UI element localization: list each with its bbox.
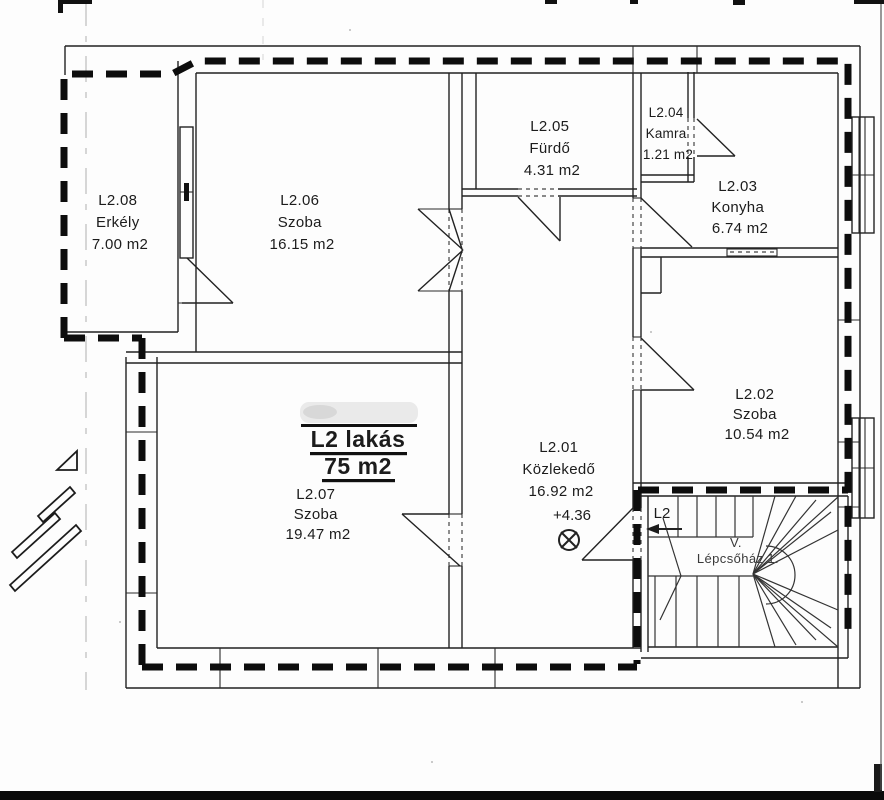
room-label-l2-08: L2.08 Erkély 7.00 m2 <box>92 192 148 253</box>
balcony-window <box>180 127 193 258</box>
room-label-l2-06: L2.06 Szoba 16.15 m2 <box>270 192 335 253</box>
right-window-lower <box>852 418 874 518</box>
room-label-l2-02: L2.02 Szoba 10.54 m2 <box>725 386 790 443</box>
room-label-l2-03: L2.03 Konyha 6.74 m2 <box>711 178 768 237</box>
kitchen-door <box>641 198 692 247</box>
double-door-l2-06 <box>418 209 462 291</box>
stairwell-label: V. Lépcsőház 1. <box>697 535 779 566</box>
right-window-upper <box>852 117 874 233</box>
title-block: L2 lakás 75 m2 <box>300 402 418 482</box>
balcony-door <box>182 258 233 303</box>
kamra-door <box>697 119 735 156</box>
room-label-l2-05: L2.05 Fürdő 4.31 m2 <box>524 118 580 179</box>
bathroom-door <box>518 197 560 241</box>
entry-arrow-icon <box>646 524 682 534</box>
apartment-title: L2 lakás <box>311 426 406 452</box>
door-l2-02 <box>641 338 694 390</box>
floor-plan-drawing: L2.08 Erkély 7.00 m2 L2.06 Szoba 16.15 m… <box>0 0 884 800</box>
scanned-floor-plan: L2.08 Erkély 7.00 m2 L2.06 Szoba 16.15 m… <box>0 0 884 800</box>
room-label-l2-07: L2.07 Szoba 19.47 m2 <box>286 486 351 543</box>
entry-annotation: L2 <box>654 505 671 522</box>
doors <box>182 119 735 566</box>
apartment-area: 75 m2 <box>324 453 392 479</box>
level-annotation: +4.36 <box>553 507 591 524</box>
room-label-l2-04: L2.04 Kamra 1.21 m2 <box>643 105 693 162</box>
door-l2-07 <box>402 514 460 566</box>
level-marker <box>559 530 579 550</box>
walls <box>65 46 860 688</box>
survey-hatch-mark <box>10 451 81 591</box>
room-label-l2-01: L2.01 Közlekedő 16.92 m2 <box>522 439 599 500</box>
staircase <box>648 496 838 647</box>
